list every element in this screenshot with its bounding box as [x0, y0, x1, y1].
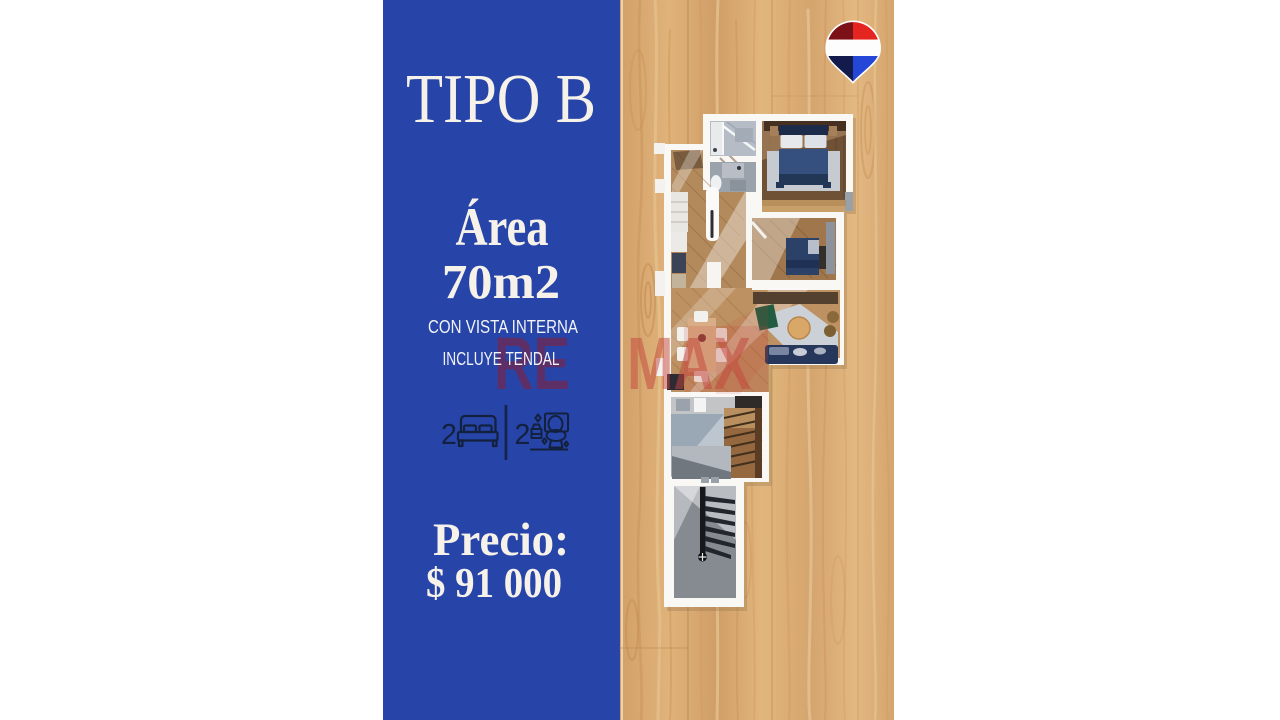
svg-text:2: 2: [515, 419, 531, 451]
svg-text:INCLUYE TENDAL: INCLUYE TENDAL: [443, 349, 560, 369]
svg-text:$ 91 000: $ 91 000: [426, 561, 562, 607]
svg-text:CON VISTA INTERNA: CON VISTA INTERNA: [428, 317, 578, 337]
svg-text:70m2: 70m2: [442, 254, 560, 309]
svg-text:2: 2: [441, 419, 457, 451]
svg-text:MAX: MAX: [627, 322, 751, 405]
svg-text:TIPO B: TIPO B: [406, 61, 596, 138]
svg-text:Área: Área: [456, 197, 549, 257]
svg-text:Precio:: Precio:: [433, 514, 569, 566]
